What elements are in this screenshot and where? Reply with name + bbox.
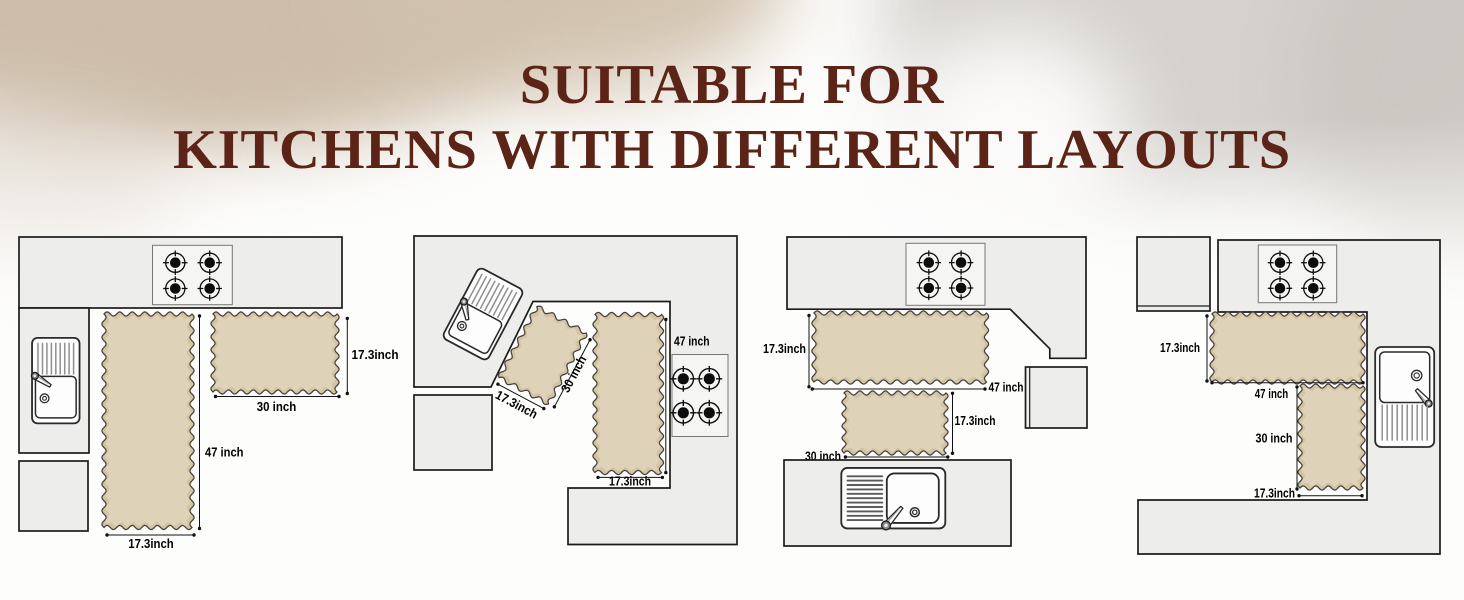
svg-text:47 inch: 47 inch	[205, 445, 244, 460]
svg-text:47 inch: 47 inch	[989, 380, 1024, 395]
svg-text:30 inch: 30 inch	[1256, 431, 1293, 446]
svg-text:17.3inch: 17.3inch	[1254, 486, 1295, 501]
svg-text:17.3inch: 17.3inch	[352, 347, 399, 362]
svg-text:17.3inch: 17.3inch	[955, 413, 996, 428]
svg-text:30 inch: 30 inch	[257, 399, 297, 414]
svg-text:47 inch: 47 inch	[1255, 386, 1289, 401]
svg-text:17.3inch: 17.3inch	[609, 474, 651, 489]
svg-text:17.3inch: 17.3inch	[128, 536, 174, 551]
svg-text:17.3inch: 17.3inch	[763, 341, 806, 356]
svg-text:17.3inch: 17.3inch	[1160, 340, 1200, 355]
svg-text:47 inch: 47 inch	[674, 334, 710, 349]
